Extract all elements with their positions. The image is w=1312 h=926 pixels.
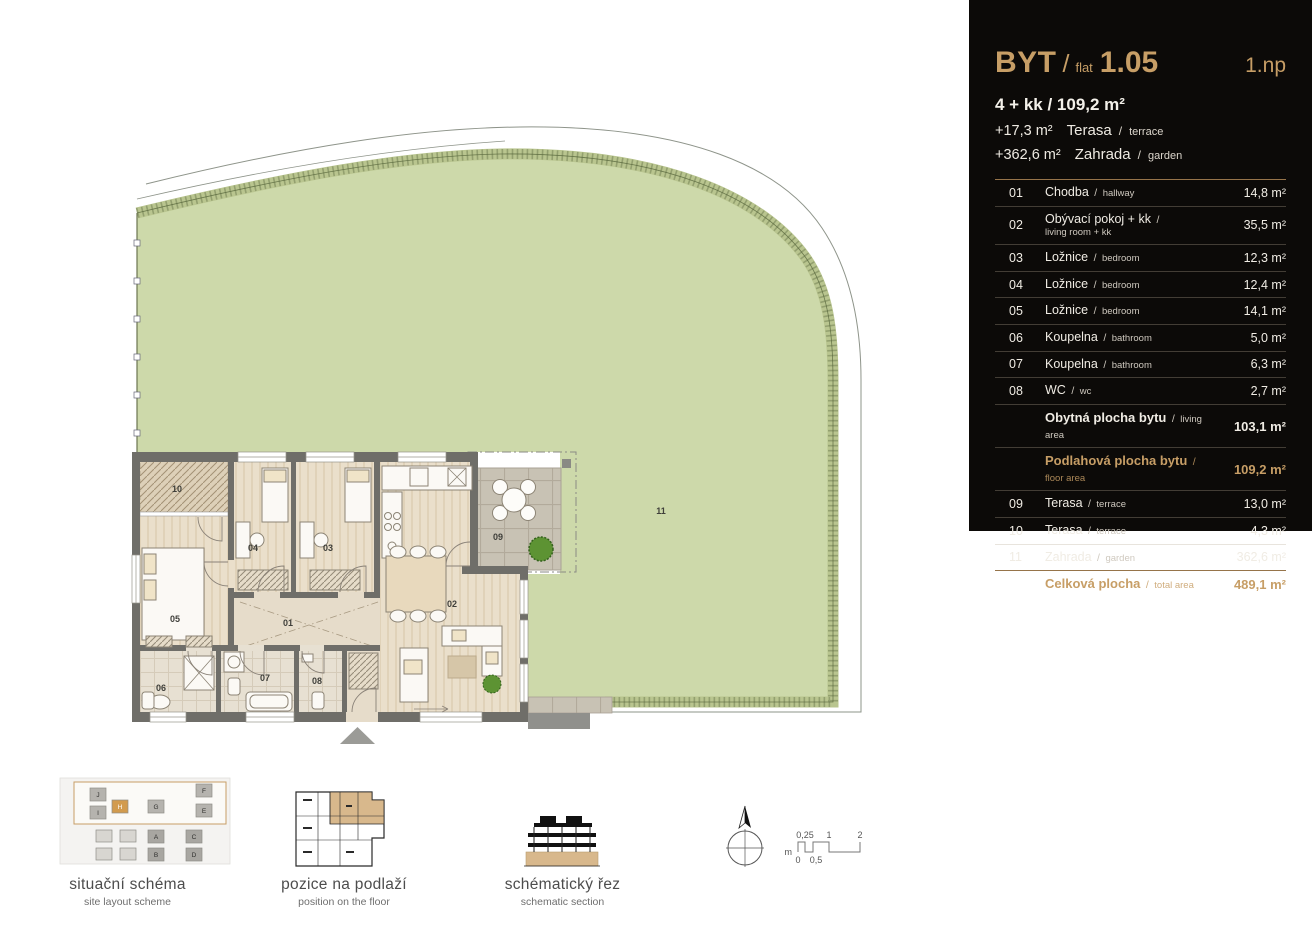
svg-text:E: E <box>202 808 207 815</box>
scale-label-0: 0 <box>795 855 800 865</box>
entrance-marker <box>340 727 375 744</box>
table-row-10: 10 Terasa / terrace 4,3 m² <box>995 517 1286 544</box>
row-number: 11 <box>1009 550 1045 564</box>
flat-number: 1.05 <box>1100 46 1158 80</box>
row-area: 6,3 m² <box>1224 357 1286 371</box>
thumbnail-site-scheme: J I H F E G A C B D <box>60 778 230 864</box>
table-row-07: 07 Koupelna / bathroom 6,3 m² <box>995 351 1286 378</box>
row-area: 14,1 m² <box>1224 304 1286 318</box>
row-number: 06 <box>1009 331 1045 345</box>
table-row-11: 11 Zahrada / garden 362,6 m² <box>995 544 1286 571</box>
terrace-10-glass <box>140 512 228 516</box>
room-label-02: 02 <box>447 599 457 609</box>
terrace-09 <box>468 452 576 572</box>
row-number: 07 <box>1009 357 1045 371</box>
caption-subtitle: position on the floor <box>270 896 418 908</box>
room-label-09: 09 <box>493 532 503 542</box>
room-label-03: 03 <box>323 543 333 553</box>
terrace-summary: +17,3 m² Terasa / terrace <box>995 122 1286 139</box>
row-area: 12,4 m² <box>1224 278 1286 292</box>
table-row-08: 08 WC / wc 2,7 m² <box>995 377 1286 404</box>
row-number: 09 <box>1009 497 1045 511</box>
north-arrow-icon <box>739 806 745 828</box>
row-area: 362,6 m² <box>1224 550 1286 564</box>
caption-schematic-section: schématický řez schematic section <box>495 876 630 908</box>
scale-unit: m <box>785 847 793 857</box>
room-label-10: 10 <box>172 484 182 494</box>
table-row-living-area: Obytná plocha bytu / living area 103,1 m… <box>995 404 1286 447</box>
table-row-total-area: Celková plocha / total area 489,1 m² <box>995 570 1286 598</box>
scale-label-2: 2 <box>857 830 862 840</box>
room-label-04: 04 <box>248 543 258 553</box>
table-row-05: 05 Ložnice / bedroom 14,1 m² <box>995 297 1286 324</box>
row-number: 03 <box>1009 251 1045 265</box>
row-number: 05 <box>1009 304 1045 318</box>
svg-text:F: F <box>202 788 206 795</box>
row-number: 01 <box>1009 186 1045 200</box>
thumbnail-schematic-section <box>524 816 600 866</box>
row-number: 04 <box>1009 278 1045 292</box>
row-area: 4,3 m² <box>1224 524 1286 538</box>
table-row-09: 09 Terasa / terrace 13,0 m² <box>995 490 1286 517</box>
row-number: 08 <box>1009 384 1045 398</box>
row-number: 02 <box>1009 218 1045 232</box>
row-area: 12,3 m² <box>1224 251 1286 265</box>
room-label-08: 08 <box>312 676 322 686</box>
row-area: 13,0 m² <box>1224 497 1286 511</box>
row-area: 14,8 m² <box>1224 186 1286 200</box>
scale-label-05: 0,5 <box>810 855 823 865</box>
caption-subtitle: site layout scheme <box>45 896 210 908</box>
terrace-value: +17,3 m² <box>995 123 1053 139</box>
flat-info-panel: BYT / flat 1.05 1.np 4 + kk / 109,2 m² +… <box>969 0 1312 531</box>
svg-text:A: A <box>154 834 159 841</box>
flat-title: BYT <box>995 46 1057 80</box>
terrace-name: Terasa <box>1067 122 1112 139</box>
svg-text:H: H <box>118 804 123 811</box>
table-row-02: 02 Obývací pokoj + kk /living room + kk … <box>995 206 1286 245</box>
floor-plan-drawing: 01 02 03 04 05 06 07 08 09 10 11 <box>0 0 969 926</box>
row-area: 2,7 m² <box>1224 384 1286 398</box>
caption-site-scheme: situační schéma site layout scheme <box>45 876 210 908</box>
row-area: 109,2 m² <box>1224 462 1286 477</box>
terrace-bush <box>529 537 553 561</box>
svg-text:J: J <box>96 792 99 799</box>
row-area: 489,1 m² <box>1224 577 1286 592</box>
separator: / <box>1119 124 1122 138</box>
room-label-06: 06 <box>156 683 166 693</box>
svg-text:G: G <box>153 804 158 811</box>
scale-label-1: 1 <box>826 830 831 840</box>
svg-text:D: D <box>192 852 197 859</box>
room-label-05: 05 <box>170 614 180 624</box>
scale-label-025: 0,25 <box>796 830 814 840</box>
table-row-04: 04 Ložnice / bedroom 12,4 m² <box>995 271 1286 298</box>
area-table: 01 Chodba / hallway 14,8 m² 02 Obývací p… <box>995 179 1286 598</box>
floor-badge: 1.np <box>1245 54 1286 78</box>
caption-title: situační schéma <box>45 876 210 894</box>
separator: / <box>1138 148 1141 162</box>
caption-floor-position: pozice na podlaží position on the floor <box>270 876 418 908</box>
caption-title: pozice na podlaží <box>270 876 418 894</box>
room-label-01: 01 <box>283 618 293 628</box>
row-area: 5,0 m² <box>1224 331 1286 345</box>
flat-label-en: flat <box>1075 60 1092 75</box>
svg-text:B: B <box>154 852 158 859</box>
scale-bar: 0,25 1 2 0 0,5 m <box>785 830 863 865</box>
garden-name-en: garden <box>1148 150 1182 162</box>
caption-subtitle: schematic section <box>495 896 630 908</box>
room-label-07: 07 <box>260 673 270 683</box>
row-area: 35,5 m² <box>1224 218 1286 232</box>
terrace-10 <box>140 460 228 512</box>
garden-value: +362,6 m² <box>995 147 1061 163</box>
table-row-03: 03 Ložnice / bedroom 12,3 m² <box>995 244 1286 271</box>
row-number: 10 <box>1009 524 1045 538</box>
flat-disposition: 4 + kk / 109,2 m² <box>995 95 1286 115</box>
table-row-06: 06 Koupelna / bathroom 5,0 m² <box>995 324 1286 351</box>
hallway-floor <box>234 592 380 650</box>
svg-text:I: I <box>97 810 99 817</box>
room-label-11: 11 <box>656 506 666 516</box>
table-row-01: 01 Chodba / hallway 14,8 m² <box>995 179 1286 206</box>
compass-icon <box>726 806 764 867</box>
garden-name: Zahrada <box>1075 146 1131 163</box>
caption-title: schématický řez <box>495 876 630 894</box>
thumbnail-floor-position <box>296 792 384 866</box>
entrance-paving <box>528 697 612 729</box>
row-area: 103,1 m² <box>1224 419 1286 434</box>
garden-summary: +362,6 m² Zahrada / garden <box>995 146 1286 163</box>
title-separator: / <box>1063 50 1070 79</box>
svg-text:C: C <box>192 834 197 841</box>
terrace-name-en: terrace <box>1129 126 1163 138</box>
table-row-floor-area: Podlahová plocha bytu / floor area 109,2… <box>995 447 1286 490</box>
flat-title-row: BYT / flat 1.05 1.np <box>995 46 1286 80</box>
